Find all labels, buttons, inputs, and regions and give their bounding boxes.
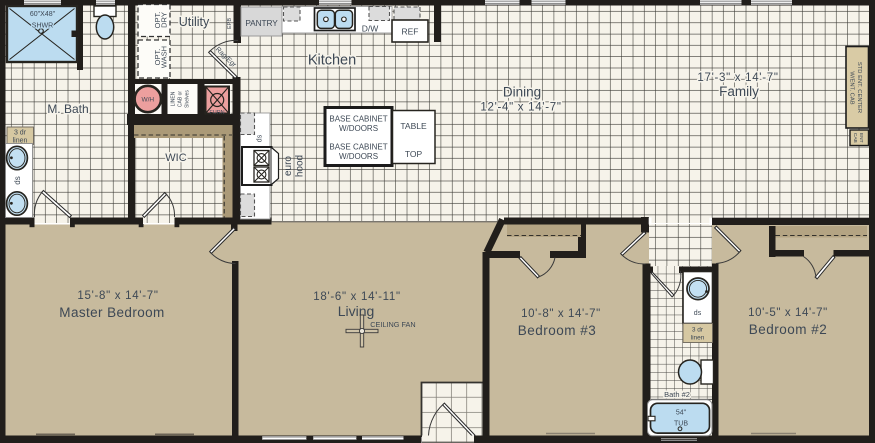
svg-text:54": 54" [676,410,687,417]
svg-text:D/W: D/W [362,24,379,34]
svg-text:ds: ds [257,134,264,142]
svg-text:60"X48": 60"X48" [30,11,56,18]
svg-text:WASH: WASH [160,46,169,68]
svg-text:ds: ds [694,310,702,317]
svg-text:W/DOORS: W/DOORS [339,124,378,133]
svg-text:BASE CABINET: BASE CABINET [329,115,387,124]
svg-text:TUB: TUB [674,421,688,428]
svg-text:12'-4" x 14'-7": 12'-4" x 14'-7" [480,102,561,114]
svg-text:DRY: DRY [160,12,169,28]
svg-text:17'-3" x 14'-7": 17'-3" x 14'-7" [697,72,778,84]
svg-text:Master Bedroom: Master Bedroom [59,305,164,320]
svg-text:15'-8" x 14'-7": 15'-8" x 14'-7" [77,290,158,302]
svg-text:TABLE: TABLE [400,121,427,131]
svg-text:ds: ds [13,176,22,184]
svg-text:10'-5" x 14'-7": 10'-5" x 14'-7" [748,307,828,319]
svg-text:Bedroom #2: Bedroom #2 [749,322,828,337]
svg-text:WIC: WIC [165,152,186,164]
svg-text:LINEN: LINEN [171,91,177,106]
svg-text:CEILING FAN: CEILING FAN [370,320,415,329]
svg-text:CAB: CAB [852,133,858,143]
svg-text:euro: euro [283,156,294,176]
svg-text:FURN: FURN [209,110,224,116]
svg-text:3 dr: 3 dr [692,327,704,334]
svg-text:linen: linen [691,335,705,342]
svg-text:Shelves: Shelves [185,90,191,108]
svg-text:hood: hood [295,155,306,177]
svg-text:Kitchen: Kitchen [308,53,356,69]
svg-text:Utility: Utility [179,15,210,29]
svg-text:18'-6" x 14'-11": 18'-6" x 14'-11" [313,291,400,303]
svg-text:Bedroom #3: Bedroom #3 [518,323,597,338]
svg-text:W/H: W/H [141,97,154,104]
svg-text:W/DOORS: W/DOORS [339,152,378,161]
svg-text:STD ENT. CENTER: STD ENT. CENTER [856,62,862,113]
svg-text:REF: REF [402,27,419,37]
svg-text:EPB: EPB [227,18,233,29]
svg-text:Family: Family [719,84,759,99]
svg-text:Bath #2: Bath #2 [664,390,690,399]
svg-text:Living: Living [338,303,375,319]
svg-text:10'-8" x 14'-7": 10'-8" x 14'-7" [521,308,601,320]
svg-text:SHWR: SHWR [32,23,53,30]
svg-text:Dining: Dining [503,85,541,100]
svg-text:BASE CABINET: BASE CABINET [329,143,387,152]
svg-text:M. Bath: M. Bath [47,102,88,116]
svg-text:TOP: TOP [405,149,423,159]
svg-text:W/ENT. CAB: W/ENT. CAB [849,71,855,104]
svg-text:ENT: ENT [858,133,864,143]
svg-text:PANTRY: PANTRY [245,18,278,28]
svg-text:3 dr: 3 dr [14,130,27,137]
svg-text:CAB or: CAB or [178,91,184,107]
